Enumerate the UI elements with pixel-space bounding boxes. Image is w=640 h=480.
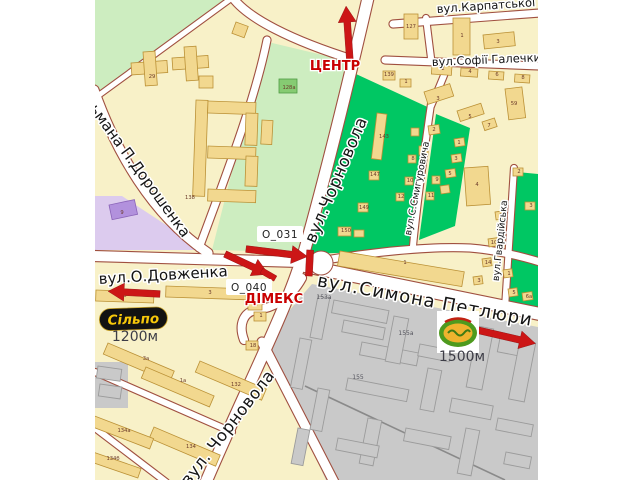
silpo-logo-text: Сільпо	[107, 311, 159, 329]
building-number: 149	[359, 205, 369, 211]
building-number: 128а	[282, 85, 295, 91]
building-number: 9	[120, 210, 123, 216]
building-number: 1	[403, 260, 406, 266]
building-number: 150	[341, 228, 351, 234]
center-direction-label: ЦЕНТР	[310, 59, 360, 74]
billboard-code-1: O_031	[262, 229, 298, 241]
billboard-marker-1	[305, 250, 313, 276]
building-number: 6а	[526, 294, 532, 300]
building-number: 155	[352, 374, 364, 381]
building-number: 11	[428, 193, 435, 199]
building-number: 3а	[143, 356, 149, 362]
building-number: 59	[511, 101, 518, 107]
building-number: 143	[379, 134, 389, 140]
building-number: 3	[477, 278, 480, 284]
building-number: 134	[186, 444, 197, 450]
building-number: 3	[436, 96, 439, 102]
building-number: 1	[507, 271, 510, 277]
building-number: 14	[485, 260, 492, 266]
building-number: 1	[457, 140, 460, 146]
left-margin	[0, 0, 95, 480]
distance-east-label: 1500м	[439, 349, 485, 365]
building-number: 2	[432, 127, 435, 133]
dimeks-label: ДІМЕКС	[245, 292, 303, 307]
building-number: 3	[454, 156, 457, 162]
building-number: 153а	[316, 294, 331, 301]
building-number: 1	[259, 313, 262, 319]
building-number: 138	[185, 195, 195, 201]
building-number: 134а	[117, 428, 130, 434]
building-number: 127	[406, 24, 416, 30]
building-number: 134б	[106, 456, 119, 462]
building-number: 18	[250, 343, 257, 349]
building-number: 1	[404, 79, 407, 85]
building-number: 2	[517, 169, 520, 175]
building-number: 5	[512, 290, 515, 296]
silpo-logo: Сільпо	[99, 307, 168, 331]
building-number: 8	[411, 156, 414, 162]
right-margin	[538, 0, 640, 480]
building-number: 5	[468, 114, 471, 120]
building-number: 139	[384, 72, 394, 78]
building-number: 8	[521, 75, 524, 81]
building-number: 12	[398, 194, 405, 200]
building-number: 3	[529, 203, 532, 209]
building-number: 1а	[180, 378, 186, 384]
market-logo	[437, 311, 479, 353]
building-number: 9	[435, 177, 438, 183]
building-number: 132	[231, 382, 241, 388]
city-map: 29138128а1271313912468357591431471491504…	[0, 0, 640, 480]
building-number: 5	[448, 171, 451, 177]
distance-west-label: 1200м	[112, 329, 158, 345]
building-number: 7	[487, 123, 490, 129]
building-number: 29	[149, 74, 156, 80]
building-number: 6	[495, 72, 498, 78]
building-number: 155а	[398, 330, 413, 337]
building-number: 3	[208, 290, 211, 296]
building-number: 147	[370, 172, 380, 178]
map-canvas: 29138128а1271313912468357591431471491504…	[0, 0, 640, 480]
building-number: 3	[496, 39, 499, 45]
building-number: 1	[460, 33, 463, 39]
